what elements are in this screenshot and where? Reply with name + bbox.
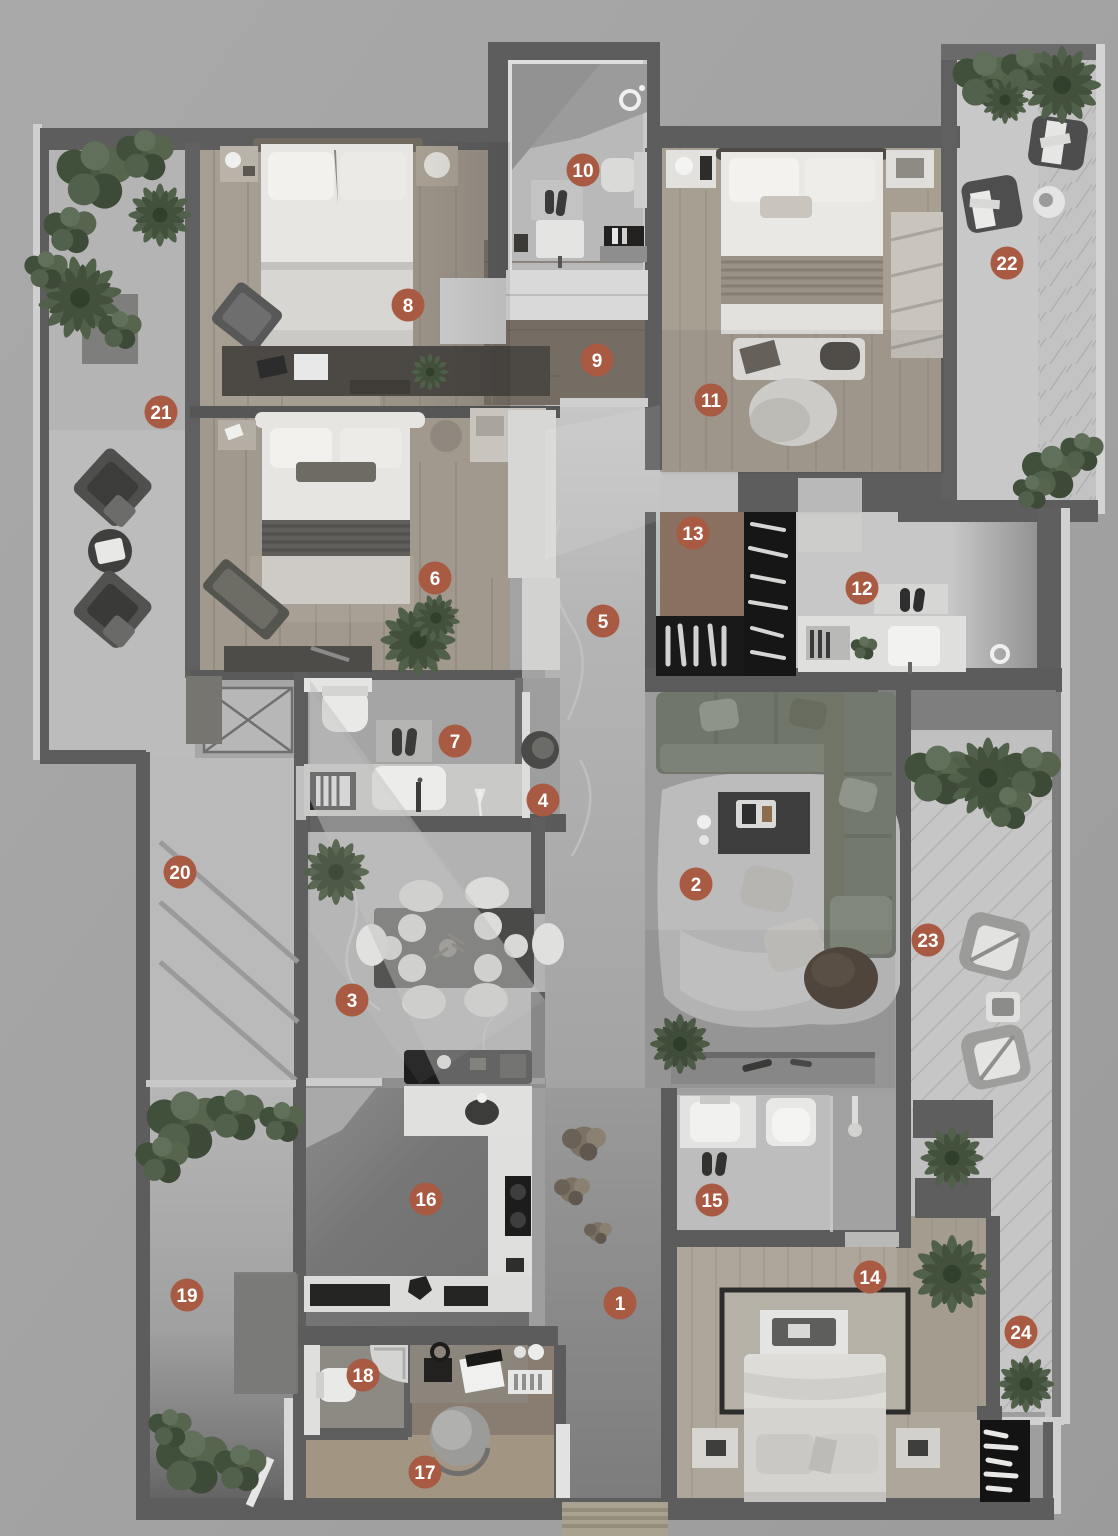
svg-text:8: 8	[403, 296, 414, 317]
svg-text:10: 10	[572, 161, 593, 182]
svg-text:9: 9	[592, 351, 603, 372]
svg-text:20: 20	[169, 863, 190, 884]
svg-text:6: 6	[430, 569, 441, 590]
svg-text:7: 7	[450, 732, 461, 753]
svg-text:18: 18	[352, 1366, 373, 1387]
svg-text:14: 14	[859, 1268, 881, 1289]
svg-text:17: 17	[414, 1463, 435, 1484]
svg-text:12: 12	[851, 579, 872, 600]
svg-text:3: 3	[347, 991, 358, 1012]
svg-text:4: 4	[538, 791, 549, 812]
svg-text:22: 22	[996, 254, 1017, 275]
svg-text:24: 24	[1010, 1323, 1032, 1344]
svg-text:16: 16	[415, 1190, 436, 1211]
svg-text:2: 2	[691, 875, 702, 896]
svg-text:15: 15	[701, 1191, 723, 1212]
svg-text:21: 21	[150, 403, 172, 424]
svg-text:13: 13	[682, 524, 703, 545]
svg-text:23: 23	[917, 931, 938, 952]
svg-text:11: 11	[701, 391, 722, 412]
svg-text:1: 1	[615, 1294, 626, 1315]
svg-text:19: 19	[176, 1286, 197, 1307]
svg-text:5: 5	[598, 612, 609, 633]
